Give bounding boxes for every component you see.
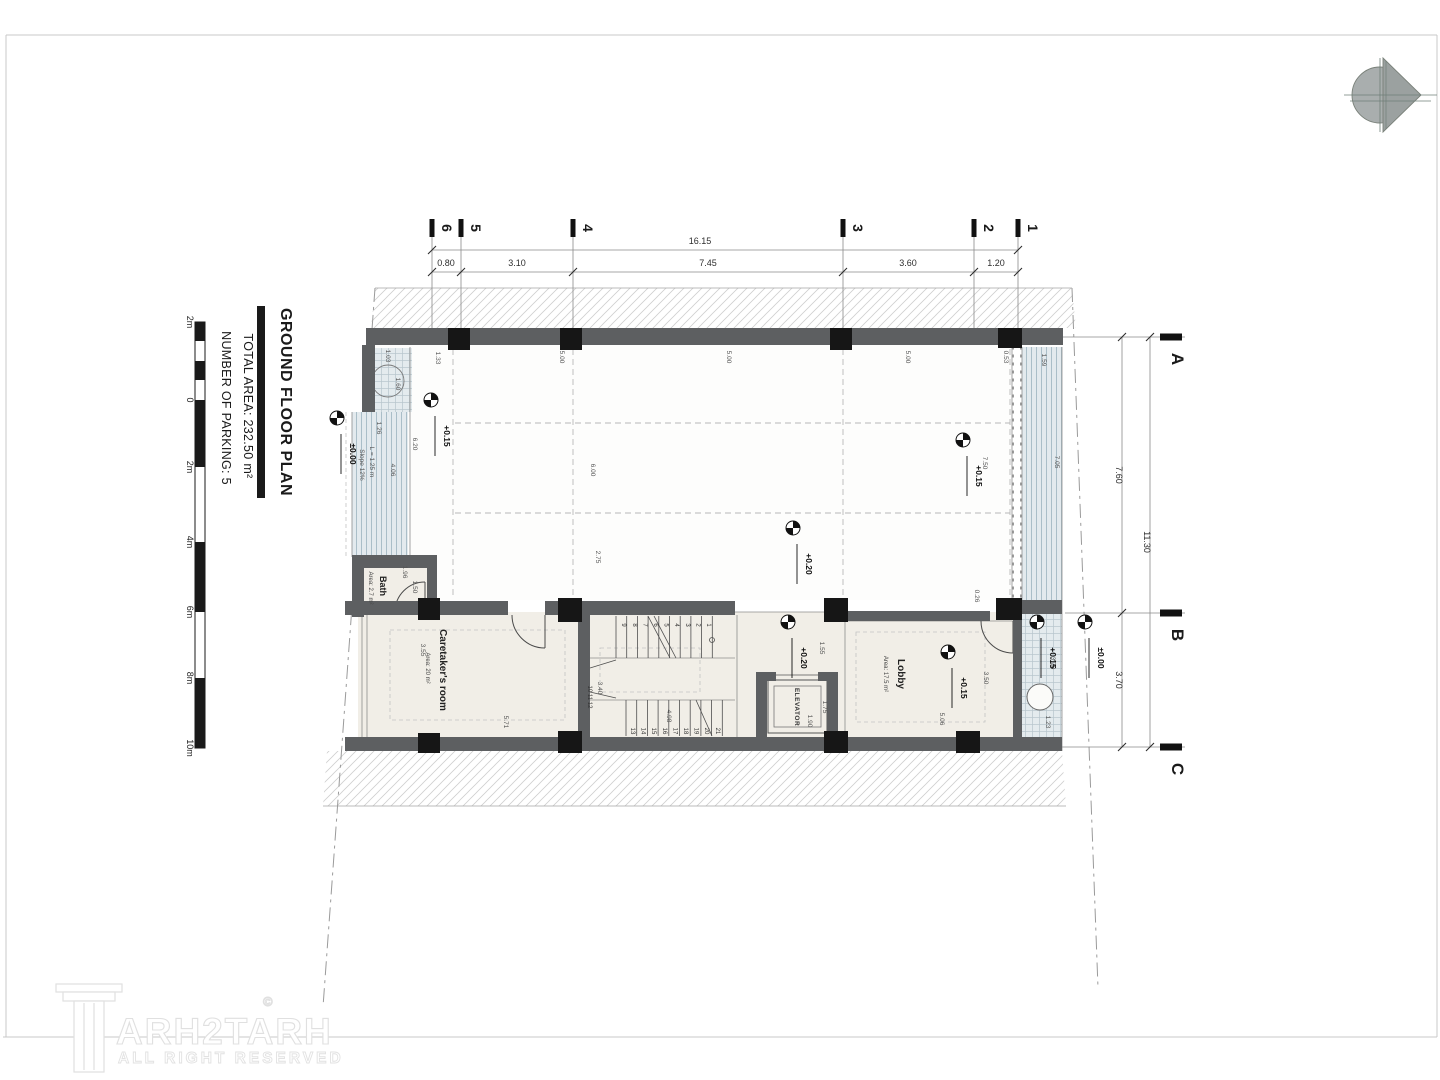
level-value: ±0.00	[1096, 647, 1106, 668]
dim-small: 3.50	[982, 672, 989, 685]
grid-row-tick	[1160, 610, 1182, 617]
planter	[375, 348, 412, 412]
grid-row-label: A	[1168, 353, 1187, 365]
level-marker-wedge	[330, 418, 337, 425]
dim-small: 1.50	[411, 581, 418, 594]
level-value: ±0.00	[348, 443, 358, 464]
scale-label: 2m	[185, 461, 195, 474]
dim-segment: 3.10	[508, 258, 526, 268]
stair-number: 17	[671, 728, 677, 735]
dim-segment: 7.45	[699, 258, 717, 268]
level-value: +0.15	[1048, 647, 1058, 669]
north-arrow-icon	[1344, 58, 1437, 132]
logo: ARH2TARH © ALL RIGHT RESERVED	[56, 984, 344, 1072]
room-label-elevator: ELEVATOR	[793, 688, 800, 726]
room-label-lobby: Lobby	[895, 659, 906, 689]
level-value: +0.20	[799, 647, 809, 669]
level-value: +0.15	[974, 465, 984, 487]
title-block: GROUND FLOOR PLAN TOTAL AREA: 232.50 m² …	[219, 306, 294, 498]
grid-row-label: C	[1168, 763, 1187, 775]
logo-subtext: ALL RIGHT RESERVED	[118, 1050, 344, 1067]
room-area-caretaker: Area: 20 m²	[424, 652, 430, 683]
grid-col-tick	[459, 219, 464, 237]
level-value: +0.20	[804, 553, 814, 575]
grid-col-label: 6	[439, 224, 455, 232]
grid-col-tick	[1016, 219, 1021, 237]
driveway-surface	[1022, 347, 1062, 610]
logo-text: ARH2TARH	[116, 1011, 333, 1052]
level-marker-wedge	[1085, 615, 1092, 622]
ramp-length-label: L = 1.25 m	[368, 447, 375, 478]
porch-column	[1027, 684, 1053, 710]
room-area-lobby: Area: 17.5 m²	[882, 656, 888, 692]
dim-small: 4.06	[389, 464, 396, 477]
grid-col-label: 4	[580, 224, 596, 232]
grid-row-tick	[1160, 744, 1182, 751]
title-underline	[257, 306, 265, 498]
dim-small: 7.05	[1053, 456, 1060, 469]
tactile-strip	[1012, 347, 1022, 610]
dim-segment: 0.80	[437, 258, 455, 268]
dim-segment: 3.70	[1114, 671, 1124, 689]
dim-segment: 3.60	[899, 258, 917, 268]
dim-small: 5.00	[725, 351, 732, 364]
dim-small: 6.00	[589, 464, 596, 477]
scale-label: 2m	[185, 316, 195, 329]
room-area-bath: Area: 2.7 m²	[367, 571, 373, 604]
stair-number-winders: 10 11 12	[586, 686, 592, 710]
grid-row-tick	[1160, 334, 1182, 341]
scale-label: 4m	[185, 536, 195, 549]
dim-small: 3.40	[596, 682, 603, 695]
grid-col-tick	[841, 219, 846, 237]
dim-small: 1.55	[818, 642, 825, 655]
grid-row-label: B	[1168, 629, 1187, 641]
grid-col-label: 5	[468, 224, 484, 232]
stair-number: 15	[650, 728, 656, 735]
dim-segment: 1.20	[987, 258, 1005, 268]
dim-small: 0.26	[973, 590, 980, 603]
level-value: +0.15	[959, 677, 969, 699]
logo-column-icon	[56, 984, 122, 1072]
ramp-slope-label: Slope 12%	[358, 449, 365, 481]
stair-number: 20	[703, 728, 709, 735]
dim-small: 5.71	[502, 716, 509, 729]
drawing-sheet: GROUND FLOOR PLAN TOTAL AREA: 232.50 m² …	[0, 0, 1440, 1080]
grid-col-tick	[571, 219, 576, 237]
entry-porch	[1022, 614, 1062, 737]
dim-small: 2.75	[594, 551, 601, 564]
dim-small: 1.03	[384, 350, 391, 363]
grid-col-label: 2	[981, 224, 997, 232]
scale-label: 10m	[185, 739, 195, 757]
dim-segment: 7.60	[1114, 466, 1124, 484]
page-title: GROUND FLOOR PLAN	[277, 308, 294, 496]
stair-number: 21	[714, 728, 720, 735]
stair-number: 18	[682, 728, 688, 735]
dim-small: 3.55	[419, 644, 426, 657]
stair-number: 14	[640, 728, 646, 735]
dim-small: 5.06	[938, 713, 945, 726]
scale-label: 6m	[185, 606, 195, 619]
stair-number: 19	[693, 728, 699, 735]
stair-number: 16	[661, 728, 667, 735]
dim-total-height: 11.30	[1142, 531, 1152, 553]
floor-plan-svg: GROUND FLOOR PLAN TOTAL AREA: 232.50 m² …	[0, 0, 1440, 1080]
room-label-caretaker: Caretaker's room	[437, 629, 448, 711]
logo-copyright-icon: ©	[263, 994, 273, 1009]
dim-total-width: 16.15	[689, 236, 712, 246]
dim-small: 1.26	[375, 422, 382, 435]
floor-fills	[352, 345, 1062, 737]
dim-small: 5.00	[558, 351, 565, 364]
dim-small: 6.20	[411, 438, 418, 451]
grid-col-tick	[972, 219, 977, 237]
dim-small: 1.90	[806, 715, 813, 728]
dim-small: 1.60	[394, 378, 401, 391]
dim-small: 1.33	[434, 352, 441, 365]
dim-small: 5.00	[904, 351, 911, 364]
total-area-label: TOTAL AREA: 232.50 m²	[241, 333, 255, 478]
dim-small: 1.23	[1044, 716, 1051, 729]
grid-col-label: 3	[850, 224, 866, 232]
dim-small: 0.53	[1002, 351, 1009, 364]
dim-small: 1.75	[821, 701, 828, 714]
stair-number: 13	[629, 728, 635, 735]
scale-label: 0	[185, 397, 195, 402]
level-value: +0.15	[442, 425, 452, 447]
dim-small: 1.59	[1040, 354, 1047, 367]
grid-col-tick	[430, 219, 435, 237]
scale-label: 8m	[185, 672, 195, 685]
dim-small: 1.96	[401, 566, 408, 579]
scale-bar	[195, 322, 205, 748]
parking-count-label: NUMBER OF PARKING: 5	[219, 331, 233, 485]
level-marker-wedge	[337, 411, 344, 418]
dim-small: 4.98	[665, 710, 672, 723]
room-label-bath: Bath	[378, 576, 388, 596]
level-marker-wedge	[1078, 622, 1085, 629]
grid-col-label: 1	[1025, 224, 1041, 232]
